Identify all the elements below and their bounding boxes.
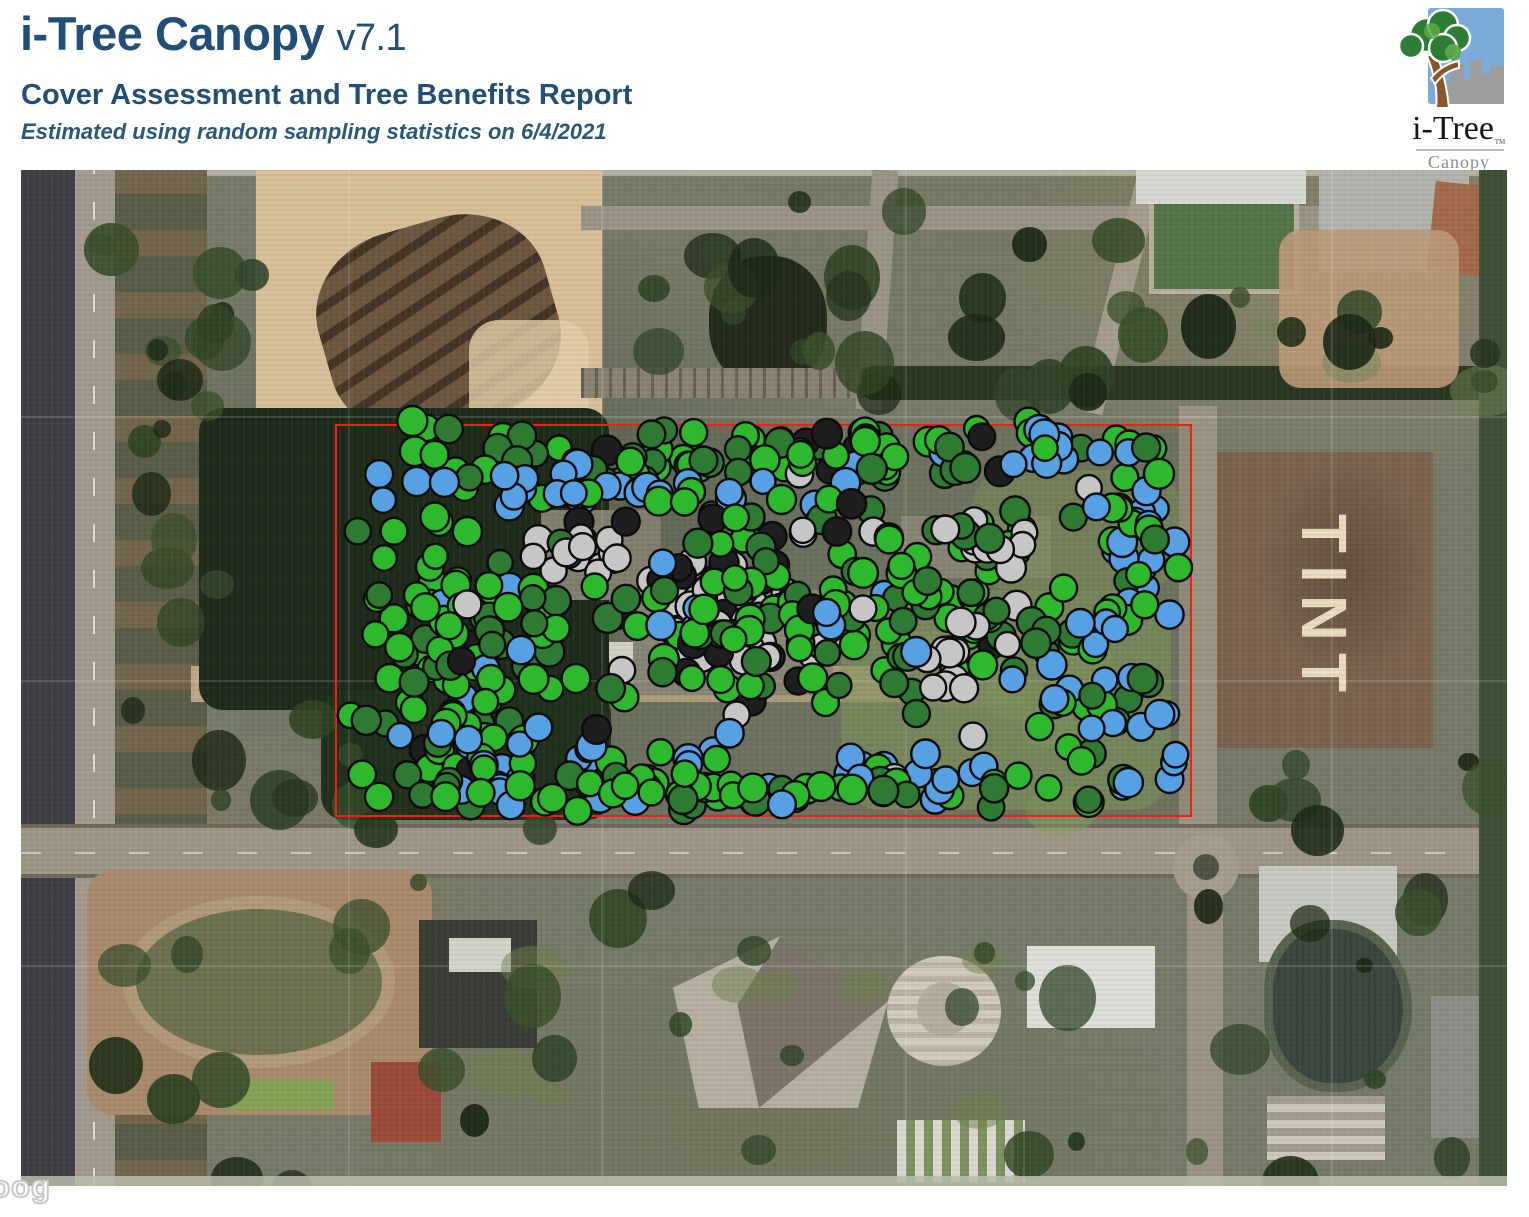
sample-point-shrub: [683, 529, 712, 558]
sample-point-shadow: [612, 508, 640, 536]
sample-point-shrub: [352, 706, 381, 735]
sample-point-water: [1001, 451, 1027, 477]
sample-point-tree: [506, 771, 535, 800]
sample-point-shrub: [366, 582, 392, 608]
sample-point-tree: [385, 633, 413, 661]
sample-point-impervious: [959, 723, 986, 750]
sample-point-impervious: [850, 595, 877, 622]
sample-point-water: [561, 480, 587, 506]
sample-point-tree: [494, 593, 523, 622]
sample-point-shrub: [826, 673, 851, 698]
sample-point-water: [371, 487, 396, 512]
sample-point-shrub: [648, 658, 676, 686]
sample-point-impervious: [603, 545, 630, 572]
sample-point-shrub: [521, 610, 547, 636]
sample-point-tree: [1126, 562, 1151, 587]
sample-point-tree: [431, 782, 460, 811]
sample-point-tree: [1050, 575, 1077, 602]
sample-point-shrub: [1128, 664, 1158, 694]
sample-point-shrub: [890, 608, 917, 635]
sample-point-water: [715, 719, 743, 747]
sample-point-shrub: [434, 415, 462, 443]
sample-point-water: [649, 550, 676, 577]
sample-point-tree: [1005, 763, 1031, 789]
sample-point-shrub: [914, 567, 942, 595]
sample-point-tree: [639, 780, 665, 806]
sample-point-tree: [807, 772, 836, 801]
sample-point-tree: [721, 626, 747, 652]
sample-point-tree: [1144, 459, 1174, 489]
sample-point-tree: [703, 746, 730, 773]
satellite-map: TINT: [21, 170, 1507, 1186]
sample-point-tree: [671, 488, 698, 515]
sample-point-shrub: [668, 785, 697, 814]
sample-point-tree: [453, 517, 482, 546]
sample-point-shrub: [857, 454, 887, 484]
itree-logo: i-Tree TM Canopy: [1396, 2, 1512, 172]
sample-point-water: [455, 726, 482, 753]
sample-point-shadow: [582, 715, 611, 744]
sample-point-water: [402, 467, 431, 496]
sample-point-tree: [672, 761, 698, 787]
sample-point-tree: [707, 666, 734, 693]
sample-point-shadow: [823, 517, 851, 545]
sample-point-impervious: [569, 533, 596, 560]
sample-point-water: [932, 766, 959, 793]
sample-point-water: [1145, 700, 1174, 729]
sample-point-shrub: [456, 464, 482, 490]
sample-point-tree: [562, 664, 591, 693]
sample-point-tree: [722, 504, 749, 531]
sample-point-tree: [1165, 554, 1192, 581]
sample-point-tree: [564, 797, 592, 825]
sample-point-water: [1083, 494, 1110, 521]
sample-point-tree: [411, 593, 439, 621]
sample-point-shadow: [812, 419, 842, 449]
sample-point-tree: [1036, 775, 1061, 800]
sample-point-water: [525, 714, 553, 742]
sample-point-shrub: [742, 647, 771, 676]
logo-canopy-highlight: [1445, 44, 1461, 60]
sample-point-shrub: [815, 640, 841, 666]
sample-point-tree: [420, 503, 449, 532]
sample-point-tree: [612, 773, 638, 799]
sample-point-water: [1102, 616, 1128, 642]
sample-point-tree: [421, 441, 449, 469]
sample-point-tree: [582, 574, 608, 600]
sample-point-shrub: [479, 632, 505, 658]
sample-point-tree: [848, 558, 878, 588]
sample-points-layer: [21, 170, 1507, 1186]
sample-point-water: [1079, 716, 1105, 742]
sample-point-shrub: [1079, 683, 1105, 709]
sample-point-shrub: [958, 580, 984, 606]
sample-point-tree: [787, 441, 814, 468]
report-note: Estimated using random sampling statisti…: [21, 119, 607, 145]
sample-point-water: [388, 723, 413, 748]
sample-point-tree: [798, 663, 827, 692]
sample-point-shrub: [869, 776, 899, 806]
sample-point-water: [428, 720, 455, 747]
sample-point-water: [813, 599, 840, 626]
sample-point-shadow: [969, 423, 996, 450]
sample-point-shadow: [837, 489, 866, 518]
sample-point-tree: [840, 631, 868, 659]
page-title: i-Tree Canopyv7.1: [20, 6, 406, 61]
sample-point-tree: [968, 651, 997, 680]
sample-point-tree: [722, 565, 747, 590]
logo-product-text: Canopy: [1428, 152, 1490, 172]
sample-point-impervious: [521, 544, 546, 569]
sample-point-tree: [1032, 435, 1057, 460]
sample-point-shrub: [345, 518, 371, 544]
sample-point-tree: [471, 756, 497, 782]
sample-point-shrub: [903, 700, 930, 727]
sample-point-shrub: [950, 453, 980, 483]
sample-point-water: [365, 460, 393, 488]
sample-point-tree: [477, 665, 504, 692]
sample-point-shrub: [1132, 434, 1160, 462]
sample-point-water: [1114, 768, 1143, 797]
sample-point-water: [1000, 667, 1026, 693]
sample-point-tree: [689, 595, 718, 624]
sample-point-tree: [467, 779, 495, 807]
sample-point-tree: [401, 696, 428, 723]
sample-point-shrub: [1021, 629, 1050, 658]
sample-point-water: [716, 479, 743, 506]
sample-point-tree: [647, 739, 673, 765]
sample-point-tree: [423, 544, 448, 569]
sample-point-water: [768, 790, 796, 818]
sample-point-shrub: [596, 674, 625, 703]
sample-point-impervious: [790, 518, 815, 543]
sample-point-water: [646, 611, 675, 640]
sample-point-shadow: [448, 648, 475, 675]
sample-point-impervious: [950, 674, 978, 702]
sample-point-water: [491, 462, 518, 489]
sample-point-tree: [679, 665, 705, 691]
sample-point-tree: [538, 784, 567, 813]
sample-point-impervious: [995, 632, 1020, 657]
sample-point-tree: [875, 526, 903, 554]
sample-point-tree: [1131, 591, 1158, 618]
sample-point-tree: [888, 553, 914, 579]
logo-trademark: TM: [1495, 138, 1506, 146]
sample-point-tree: [644, 487, 673, 516]
sample-point-shrub: [1141, 526, 1169, 554]
sample-point-tree: [397, 406, 427, 436]
sample-point-tree: [365, 783, 393, 811]
sample-point-tree: [680, 419, 707, 446]
sample-point-tree: [787, 636, 813, 662]
sample-point-tree: [381, 518, 408, 545]
sample-point-impervious: [931, 516, 959, 544]
logo-canopy-highlight2: [1424, 23, 1440, 39]
sample-point-shrub: [651, 577, 678, 604]
sample-point-water: [1041, 685, 1069, 713]
sample-point-shrub: [612, 585, 640, 613]
sample-point-tree: [739, 774, 768, 803]
itree-logo-graphic: i-Tree TM Canopy: [1396, 2, 1512, 172]
sample-point-impervious: [946, 608, 976, 638]
sample-point-shrub: [638, 421, 666, 449]
sample-point-shrub: [880, 669, 908, 697]
sample-point-tree: [838, 775, 867, 804]
sample-point-tree: [617, 448, 645, 476]
sample-point-tree: [476, 572, 503, 599]
logo-brand-text: i-Tree: [1412, 110, 1494, 147]
sample-point-tree: [362, 621, 388, 647]
sample-point-tree: [851, 427, 880, 456]
sample-point-water: [901, 637, 931, 667]
sample-point-impervious: [920, 675, 946, 701]
sample-point-water: [911, 740, 940, 769]
app-title: i-Tree Canopy: [20, 7, 324, 60]
sample-point-tree: [1026, 713, 1053, 740]
sample-point-shrub: [980, 774, 1008, 802]
report-subtitle: Cover Assessment and Tree Benefits Repor…: [21, 79, 632, 112]
sample-point-tree: [1068, 747, 1095, 774]
sample-point-shrub: [975, 524, 1004, 553]
sample-point-water: [507, 636, 535, 664]
sample-point-tree: [371, 545, 396, 570]
sample-point-shrub: [520, 585, 545, 610]
sample-point-water: [430, 468, 459, 497]
sample-point-water: [1066, 609, 1095, 638]
sample-point-impervious: [453, 590, 481, 618]
sample-point-water: [1163, 742, 1188, 767]
sample-point-shrub: [400, 668, 429, 697]
sample-point-tree: [519, 664, 549, 694]
sample-point-shrub: [1075, 787, 1101, 813]
app-version: v7.1: [336, 17, 406, 59]
sample-point-tree: [767, 485, 796, 514]
sample-point-water: [1155, 601, 1183, 629]
sample-point-water: [1087, 440, 1113, 466]
sample-point-tree: [473, 689, 499, 715]
